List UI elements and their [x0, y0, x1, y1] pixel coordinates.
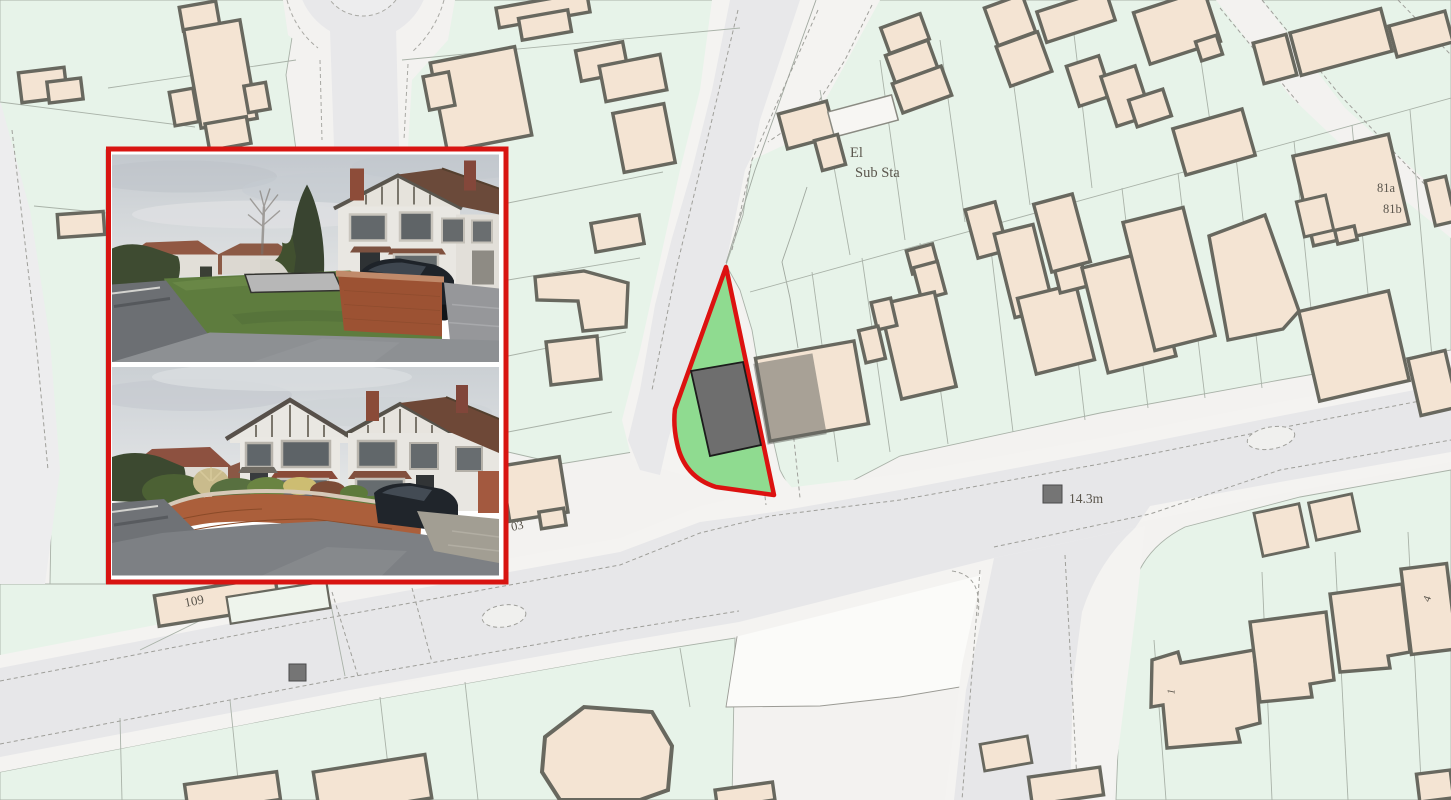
svg-text:El: El [850, 145, 863, 161]
svg-text:14.3m: 14.3m [1069, 491, 1104, 506]
svg-text:81b: 81b [1383, 202, 1402, 216]
svg-text:81a: 81a [1377, 181, 1396, 195]
svg-text:Sub Sta: Sub Sta [855, 165, 900, 181]
